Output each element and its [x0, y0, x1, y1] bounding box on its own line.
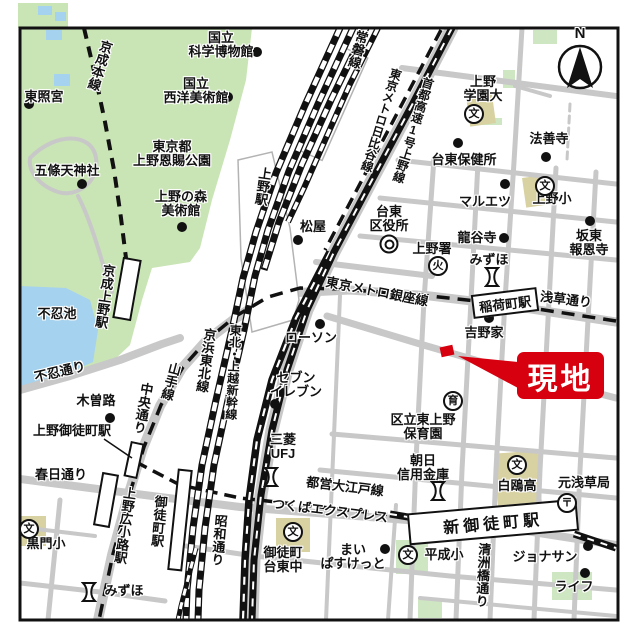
poi-jonathan: ジョナサン: [512, 550, 577, 564]
poi-taito-city-hall: 台東区役所: [369, 205, 408, 233]
poi-bando-hoonji: 坂東報恩寺: [569, 229, 608, 257]
road-label-kasuga: 春日通り: [35, 468, 87, 482]
school-icon: 文: [535, 176, 555, 196]
poi-mizuho-1: みずほ: [469, 253, 508, 267]
poi-asahi-shinkin: 朝日信用金庫: [397, 454, 449, 482]
poi-hozenji: 法善寺: [529, 132, 568, 146]
station-label-ueno-okachimachi: 上野御徒町駅: [33, 424, 111, 438]
school-icon: 文: [507, 455, 527, 475]
school-icon: 文: [398, 545, 418, 565]
bank-icon: [81, 581, 97, 603]
poi-science-museum: 国立科学博物館: [188, 31, 253, 59]
poi-mizuho-2: みずほ: [104, 584, 143, 598]
poi-gojoten-shrine: 五條天神社: [34, 164, 99, 178]
poi-western-art-museum: 国立西洋美術館: [163, 77, 228, 105]
school-icon: 文: [464, 104, 484, 124]
map-bleed: [18, 3, 68, 28]
poi-heisei-elementary: 平成小: [424, 548, 463, 562]
poi-higashi-ueno-nursery: 区立東上野保育園: [390, 413, 455, 441]
bank-icon: [484, 266, 500, 288]
compass-north-label: N: [575, 27, 586, 41]
poi-yoshinoya: 吉野家: [464, 326, 503, 340]
poi-shinobazu-pond: 不忍池: [37, 307, 76, 321]
poi-seven-eleven: セブンイレブン: [270, 371, 322, 399]
government-office-icon: [380, 235, 399, 254]
poi-motoasakusa-post: 元浅草局: [558, 476, 610, 490]
poi-matsuya: 松屋: [300, 220, 326, 234]
poi-my-basket: まいぱすけっと: [320, 543, 385, 571]
poi-ryukokuji: 龍谷寺: [457, 231, 496, 245]
poi-ueno-fire-station: 上野署: [412, 242, 451, 256]
map-canvas: N 東照宮 国立科学博物館 国立西洋美術館 東京都上野恩賜公園 五條天神社 上野…: [0, 0, 640, 640]
fire-station-icon: 火: [428, 256, 448, 276]
road-label-kiyosubashi: 清洲橋通り: [473, 542, 490, 608]
poi-maruetsu: マルエツ: [459, 195, 511, 209]
school-icon: 文: [19, 519, 39, 539]
site-callout: 現地: [517, 352, 604, 399]
post-office-icon: 〒: [557, 493, 577, 513]
bank-icon: [263, 466, 279, 488]
poi-kisoji: 木曽路: [76, 394, 115, 408]
poi-ueno-gakuen: 上野学園大: [463, 75, 502, 103]
poi-mitsubishi-ufj: 三菱UFJ: [270, 433, 296, 461]
poi-taito-health-center: 台東保健所: [431, 153, 496, 167]
poi-mori-museum: 上野の森美術館: [155, 190, 207, 218]
poi-toshogu: 東照宮: [24, 90, 63, 104]
poi-lawson: ローソン: [285, 331, 337, 345]
nursery-icon: 育: [443, 391, 463, 411]
school-icon: 文: [283, 522, 303, 542]
poi-hakuo-high: 白鴎高: [497, 479, 536, 493]
poi-life: ライフ: [554, 580, 593, 594]
bank-icon: [430, 480, 446, 502]
poi-ueno-park: 東京都上野恩賜公園: [133, 140, 211, 168]
poi-okachimachi-taito-jhs: 御徒町台東中: [263, 546, 302, 574]
poi-kuromon-elementary: 黒門小: [26, 537, 65, 551]
